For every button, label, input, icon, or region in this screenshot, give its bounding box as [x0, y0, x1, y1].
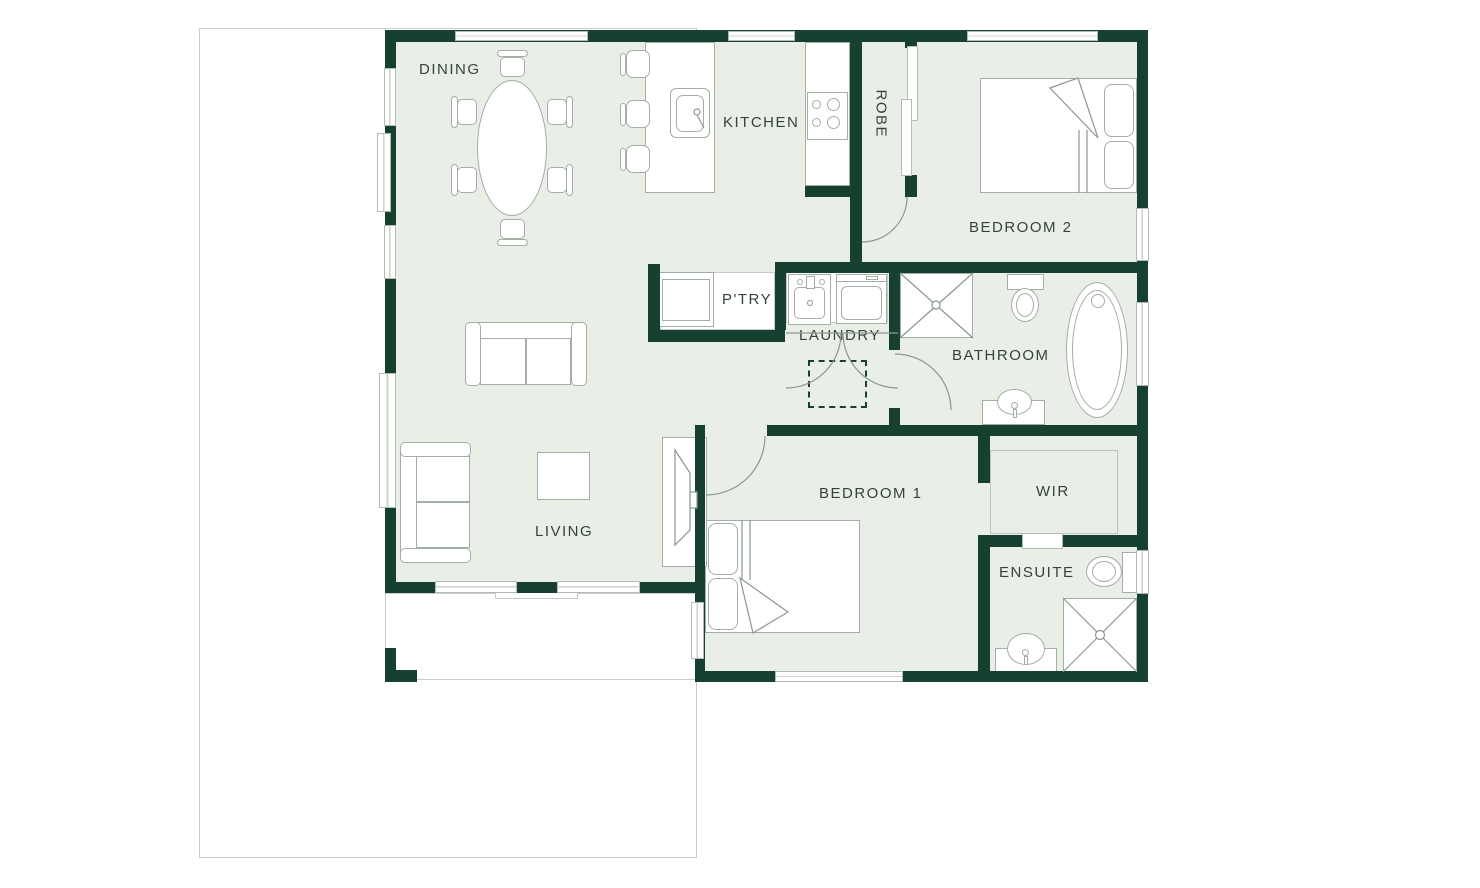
dining-chair [500, 57, 525, 77]
wall [978, 535, 990, 682]
ensuite-tap-stem [1024, 656, 1028, 665]
room-label-bedroom2: BEDROOM 2 [969, 220, 1073, 235]
wall [889, 262, 900, 350]
wall [850, 30, 862, 273]
bathtub-inner [1072, 290, 1122, 410]
room-label-ensuite: ENSUITE [999, 565, 1075, 580]
dining-chair [457, 99, 477, 125]
bed1-pillow [708, 523, 738, 575]
sofa-cushion [480, 338, 526, 385]
cooktop-burner [827, 116, 840, 129]
washing-machine-knob [866, 276, 878, 280]
wall [385, 670, 417, 682]
wall [778, 262, 1148, 273]
sofa2-cushion [416, 502, 470, 548]
window [728, 31, 795, 41]
floor-plan: DINING KITCHEN ROBE BEDROOM 2 P'TRY LAUN… [0, 0, 1480, 888]
window [775, 671, 903, 682]
ensuite-shower [1063, 598, 1137, 672]
coffee-table [537, 452, 590, 500]
cooktop-burner [812, 118, 821, 127]
room-label-dining: DINING [419, 62, 481, 77]
sofa-cushion [526, 338, 571, 385]
wall [648, 330, 785, 342]
window [1136, 208, 1149, 261]
bathroom-shower [900, 273, 973, 338]
entry-step [495, 592, 578, 599]
laundry-tub-basin [794, 287, 825, 319]
wall [775, 262, 786, 330]
dining-chair-back [451, 164, 458, 196]
bed2-pillow [1104, 84, 1134, 137]
wall [978, 425, 990, 483]
dining-chair [457, 167, 477, 193]
laundry-tap [819, 279, 825, 285]
dining-chair-back [566, 164, 573, 196]
bathtub-drain [1091, 294, 1105, 308]
bar-stool-back [620, 53, 626, 76]
dining-chair-back [497, 50, 528, 57]
sofa2-arm [400, 442, 471, 457]
room-label-pantry: P'TRY [722, 292, 772, 307]
sofa2-cushion [416, 456, 470, 502]
bed2-pillow [1104, 141, 1134, 189]
window [379, 373, 396, 508]
pantry-cabinet-shelf [662, 279, 710, 321]
ensuite-tap [1022, 649, 1029, 656]
sofa-arm [571, 322, 587, 386]
window [691, 602, 704, 659]
dining-table [477, 80, 547, 216]
dining-chair-back [451, 96, 458, 128]
window [455, 31, 588, 41]
dining-chair-back [566, 96, 573, 128]
window [435, 581, 517, 593]
room-label-bathroom: BATHROOM [952, 348, 1050, 363]
ensuite-cavity-slider [1022, 533, 1063, 549]
dining-chair [547, 167, 567, 193]
kitchen-sink-basin [676, 95, 704, 132]
wall [805, 186, 862, 197]
wall [695, 671, 1148, 682]
bathroom-tap-stem [1013, 409, 1017, 418]
laundry-appliance-space [808, 360, 867, 408]
dining-chair [547, 99, 567, 125]
bar-stool [626, 145, 650, 173]
sofa2-arm [400, 548, 471, 563]
laundry-tap [797, 279, 803, 285]
dining-chair [500, 219, 525, 239]
window [377, 133, 391, 212]
window [1136, 302, 1149, 386]
dining-chair-back [497, 239, 528, 246]
window [967, 31, 1098, 41]
ensuite-toilet-seat [1092, 561, 1116, 582]
bar-stool [626, 100, 650, 128]
window [557, 581, 640, 593]
bed1-pillow [708, 578, 738, 630]
wall [385, 582, 697, 593]
bar-stool-back [620, 103, 626, 126]
washing-machine-drum [841, 286, 882, 320]
robe-sliding-door [901, 99, 912, 176]
bathroom-tap [1011, 402, 1018, 409]
room-label-laundry: LAUNDRY [799, 328, 881, 343]
washing-machine-panel [836, 281, 887, 282]
bar-stool-back [620, 148, 626, 171]
room-label-living: LIVING [535, 524, 593, 539]
sofa2-back [400, 444, 417, 563]
window [384, 225, 396, 279]
cooktop [807, 92, 848, 140]
window [1136, 550, 1149, 594]
wall [767, 425, 1148, 436]
room-label-wir: WIR [1036, 484, 1070, 499]
sofa-back [465, 322, 587, 339]
cooktop-burner [812, 100, 821, 109]
bathroom-toilet-seat [1016, 293, 1034, 317]
room-label-kitchen: KITCHEN [723, 115, 799, 130]
room-label-robe: ROBE [874, 90, 889, 136]
porch [385, 593, 697, 680]
bar-stool [626, 50, 650, 78]
cooktop-burner [827, 98, 840, 111]
laundry-tap-spout [806, 276, 815, 289]
room-label-bedroom1: BEDROOM 1 [819, 486, 923, 501]
window [384, 68, 396, 126]
sofa-arm [465, 322, 481, 386]
wall [978, 535, 1148, 547]
wall [905, 175, 917, 197]
